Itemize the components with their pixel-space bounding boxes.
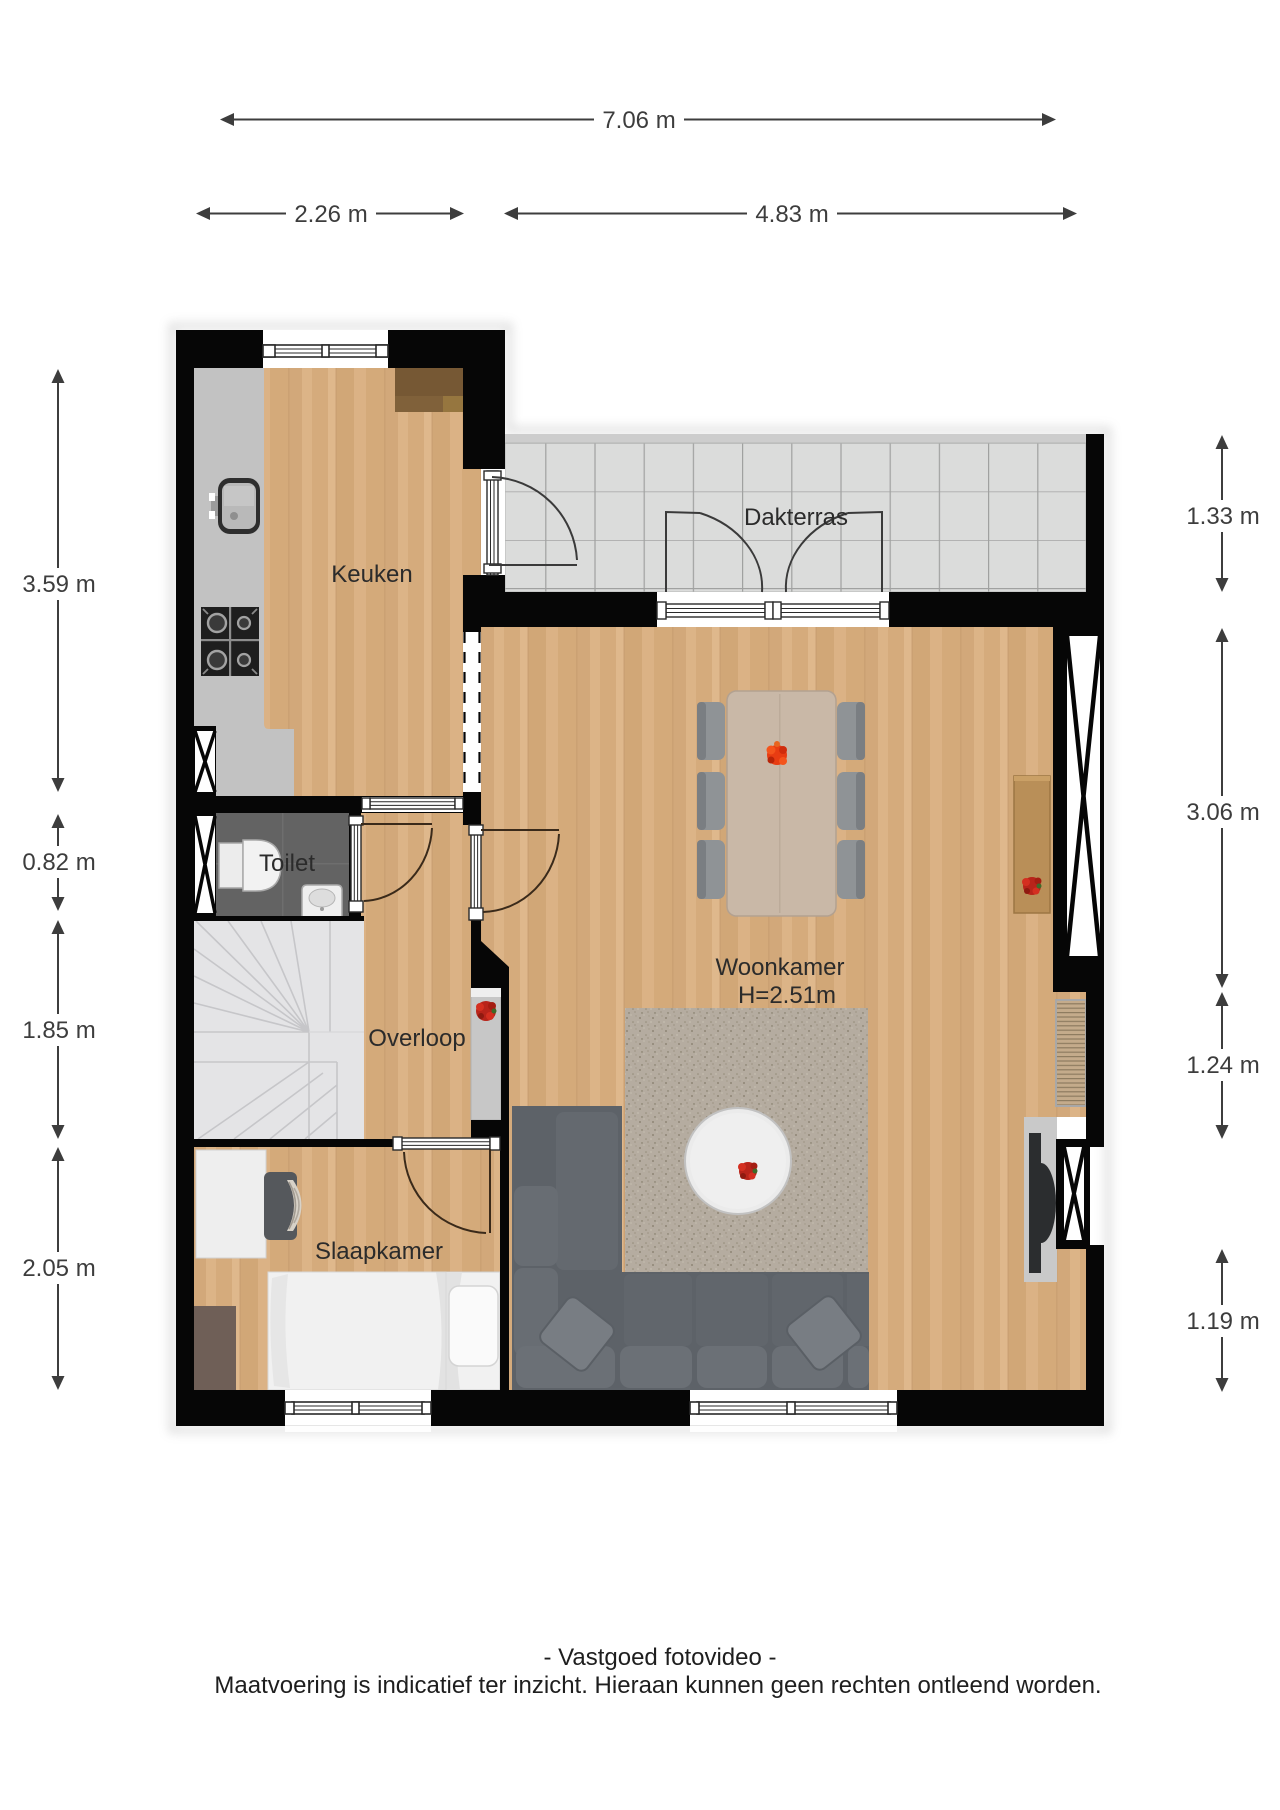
svg-text:Keuken: Keuken	[331, 561, 412, 588]
svg-text:1.19 m: 1.19 m	[1186, 1308, 1259, 1335]
svg-text:0.82 m: 0.82 m	[22, 849, 95, 876]
svg-text:2.26 m: 2.26 m	[294, 201, 367, 228]
svg-text:Overloop: Overloop	[368, 1025, 465, 1052]
svg-text:4.83 m: 4.83 m	[755, 201, 828, 228]
svg-text:2.05 m: 2.05 m	[22, 1255, 95, 1282]
svg-text:- Vastgoed fotovideo -: - Vastgoed fotovideo -	[543, 1644, 776, 1671]
svg-text:3.06 m: 3.06 m	[1186, 799, 1259, 826]
svg-text:Woonkamer: Woonkamer	[716, 954, 845, 981]
svg-text:7.06 m: 7.06 m	[602, 107, 675, 134]
svg-text:Toilet: Toilet	[259, 850, 315, 877]
svg-text:1.85 m: 1.85 m	[22, 1017, 95, 1044]
svg-text:H=2.51m: H=2.51m	[738, 982, 836, 1009]
svg-text:Dakterras: Dakterras	[744, 504, 848, 531]
svg-text:1.24 m: 1.24 m	[1186, 1052, 1259, 1079]
svg-text:Slaapkamer: Slaapkamer	[315, 1238, 443, 1265]
svg-text:Maatvoering is indicatief ter: Maatvoering is indicatief ter inzicht. H…	[214, 1672, 1101, 1699]
svg-text:1.33 m: 1.33 m	[1186, 503, 1259, 530]
svg-text:3.59 m: 3.59 m	[22, 571, 95, 598]
